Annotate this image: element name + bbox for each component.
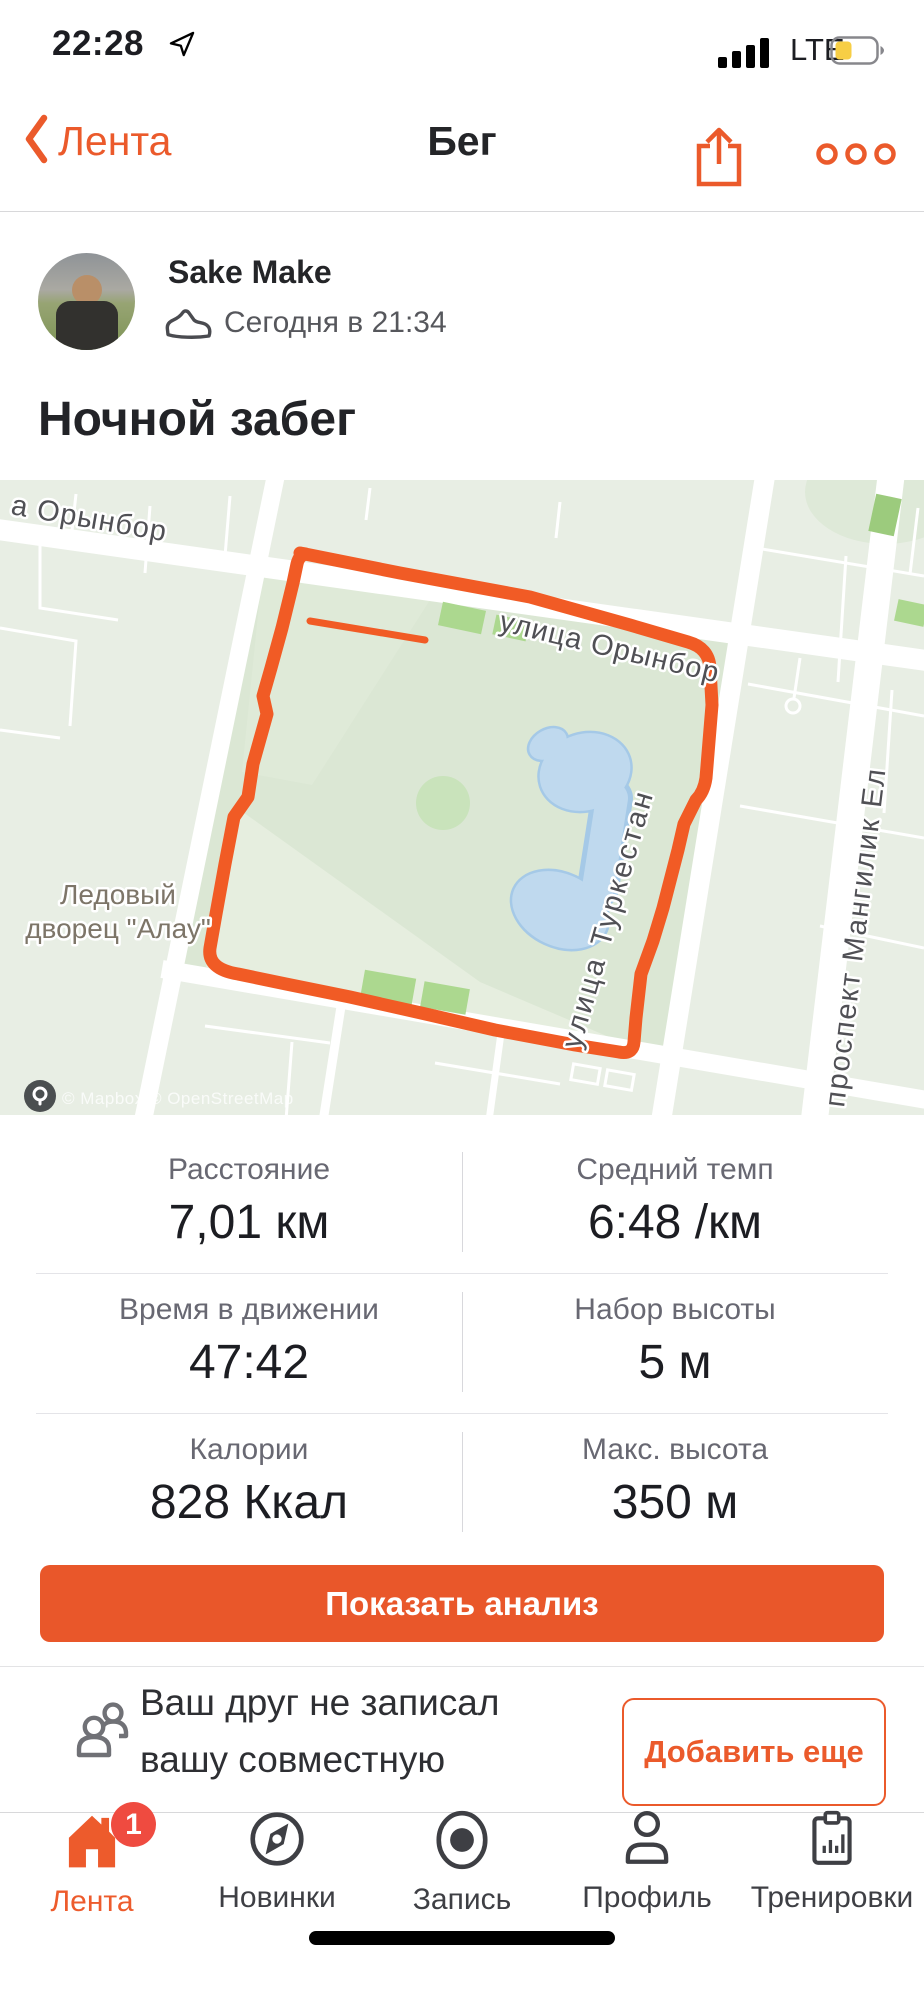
attribution-text: © Mapbox © OpenStreetMap	[62, 1089, 294, 1108]
stat-value: 828 Ккал	[36, 1474, 462, 1532]
location-arrow-icon	[168, 30, 196, 63]
activity-title: Ночной забег	[38, 392, 356, 447]
back-button-label: Лента	[58, 118, 171, 165]
divider	[36, 1273, 888, 1274]
friend-prompt-line1: Ваш друг не записал	[140, 1674, 499, 1731]
divider	[462, 1152, 463, 1252]
stat-value: 6:48 /км	[462, 1194, 888, 1252]
stat-elevation-gain: Набор высоты 5 м	[462, 1292, 888, 1392]
signal-bars-icon	[718, 38, 782, 73]
tab-record[interactable]: Запись	[374, 1808, 550, 1917]
compass-icon	[246, 1808, 308, 1870]
stat-value: 47:42	[36, 1334, 462, 1392]
stat-label: Набор высоты	[462, 1292, 888, 1328]
add-more-button[interactable]: Добавить еще	[622, 1698, 886, 1806]
group-icon	[72, 1700, 138, 1765]
record-icon	[431, 1808, 493, 1872]
share-button[interactable]	[692, 126, 746, 193]
stat-label: Калории	[36, 1432, 462, 1468]
avatar[interactable]	[38, 253, 135, 350]
stat-avg-pace: Средний темп 6:48 /км	[462, 1152, 888, 1252]
stat-label: Время в движении	[36, 1292, 462, 1328]
mapbox-logo-icon	[24, 1080, 56, 1112]
stat-label: Макс. высота	[462, 1432, 888, 1468]
share-icon	[692, 126, 746, 188]
author-name[interactable]: Sake Make	[168, 254, 332, 291]
tab-label: Лента	[4, 1885, 180, 1919]
stat-max-elevation: Макс. высота 350 м	[462, 1432, 888, 1532]
divider	[462, 1292, 463, 1392]
stat-value: 350 м	[462, 1474, 888, 1532]
route-map[interactable]: а Орынбор улица Орынбор улица Туркестан …	[0, 480, 924, 1115]
stat-value: 5 м	[462, 1334, 888, 1392]
clipboard-chart-icon	[801, 1808, 863, 1870]
friend-prompt-line2: вашу совместную	[140, 1731, 499, 1788]
poi-label: дворец "Алау"	[25, 913, 211, 944]
status-time: 22:28	[52, 24, 144, 64]
show-analysis-button[interactable]: Показать анализ	[40, 1565, 884, 1642]
tab-label: Профиль	[559, 1881, 735, 1915]
stat-distance: Расстояние 7,01 км	[36, 1152, 462, 1252]
divider	[36, 1413, 888, 1414]
ellipsis-icon	[816, 142, 896, 166]
person-icon	[616, 1808, 678, 1870]
divider	[0, 1666, 924, 1667]
chevron-left-icon	[22, 113, 50, 170]
stat-value: 7,01 км	[36, 1194, 462, 1252]
tab-training[interactable]: Тренировки	[744, 1808, 920, 1915]
stat-calories: Калории 828 Ккал	[36, 1432, 462, 1532]
home-indicator[interactable]	[309, 1931, 615, 1945]
activity-timestamp: Сегодня в 21:34	[224, 306, 447, 340]
divider	[462, 1432, 463, 1532]
run-shoe-icon	[164, 303, 212, 348]
tab-profile[interactable]: Профиль	[559, 1808, 735, 1915]
stat-moving-time: Время в движении 47:42	[36, 1292, 462, 1392]
tab-label: Новинки	[189, 1881, 365, 1915]
poi-label: Ледовый	[60, 879, 176, 910]
tab-label: Тренировки	[744, 1881, 920, 1915]
stat-label: Расстояние	[36, 1152, 462, 1188]
tab-label: Запись	[374, 1883, 550, 1917]
friend-prompt-text: Ваш друг не записал вашу совместную	[140, 1674, 499, 1788]
more-options-button[interactable]	[816, 142, 896, 171]
battery-icon	[830, 36, 886, 71]
stat-label: Средний темп	[462, 1152, 888, 1188]
back-button[interactable]: Лента	[22, 113, 171, 170]
strava-activity-screen: 22:28 LTE Бег Лента	[0, 0, 924, 2000]
notification-badge: 1	[111, 1802, 156, 1847]
tab-whats-new[interactable]: Новинки	[189, 1808, 365, 1915]
